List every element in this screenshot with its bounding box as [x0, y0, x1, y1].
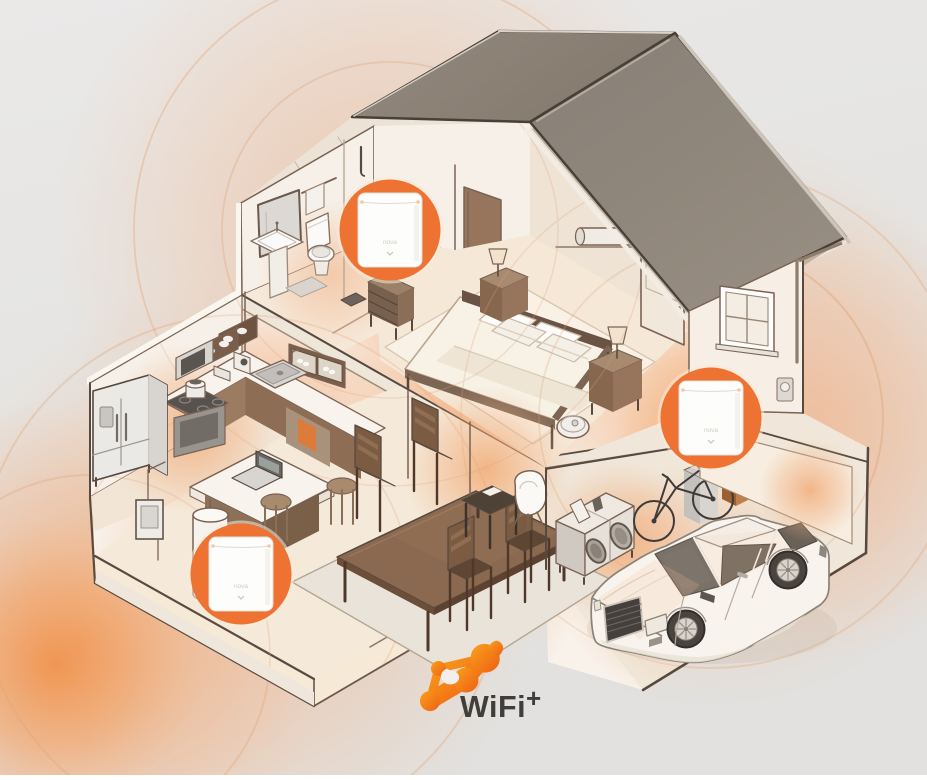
svg-text:WiFi: WiFi [460, 690, 526, 724]
svg-text:nova: nova [704, 427, 718, 434]
svg-text:+: + [526, 683, 541, 713]
svg-text:nova: nova [383, 239, 397, 246]
svg-text:nova: nova [234, 583, 248, 590]
